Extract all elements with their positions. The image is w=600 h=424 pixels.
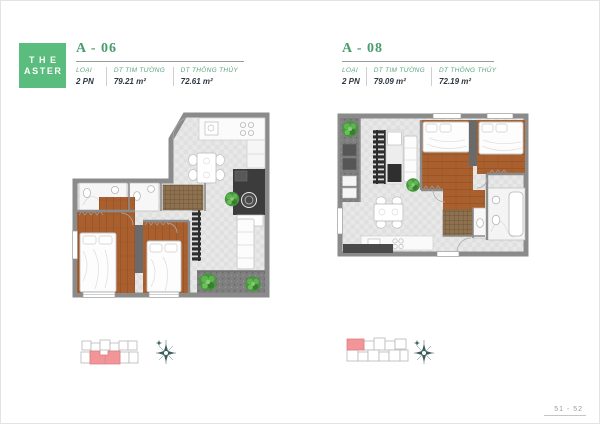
sofa	[237, 219, 254, 269]
spec-value: 72.19 m²	[439, 77, 496, 86]
unit-header-a06: A - 06 LOẠI 2 PN DT TIM TƯỜNG 79.21 m² D…	[76, 41, 244, 86]
entry-mat	[443, 210, 473, 236]
spec-label: DT TIM TƯỜNG	[374, 67, 425, 74]
keyplan-a08	[345, 337, 411, 367]
title-underline	[342, 61, 494, 62]
spec-type: LOẠI 2 PN	[342, 67, 366, 86]
spec-label: DT TIM TƯỜNG	[114, 67, 167, 74]
keyplan-a06	[79, 338, 141, 368]
spec-value: 79.21 m²	[114, 77, 167, 86]
spec-value: 2 PN	[342, 77, 360, 86]
kitchen-island	[373, 130, 403, 184]
brochure-page: THE ASTER A - 06 LOẠI 2 PN DT TIM TƯỜNG …	[0, 0, 600, 424]
sofa	[404, 136, 417, 182]
entry-mat	[163, 185, 203, 210]
floor-plan-a08	[337, 112, 533, 260]
bathroom	[487, 188, 525, 240]
compass-icon	[414, 340, 434, 364]
wardrobe	[135, 225, 143, 273]
spec-gross-area: DT TIM TƯỜNG 79.21 m²	[106, 67, 173, 86]
compass-icon	[156, 340, 176, 364]
wc	[473, 208, 487, 238]
bedroom-2	[143, 221, 189, 293]
spec-net-area: DT THÔNG THỦY 72.19 m²	[431, 67, 502, 86]
plant-icon	[199, 273, 217, 291]
unit-title: A - 08	[342, 41, 494, 57]
unit-header-a08: A - 08 LOẠI 2 PN DT TIM TƯỜNG 79.09 m² D…	[342, 41, 494, 86]
unit-specs: LOẠI 2 PN DT TIM TƯỜNG 79.09 m² DT THÔNG…	[342, 67, 494, 86]
title-underline	[76, 61, 244, 62]
plant-icon	[342, 121, 358, 137]
spec-label: LOẠI	[342, 67, 360, 74]
floor-plan-a06	[71, 109, 271, 301]
wardrobe	[469, 120, 477, 166]
spec-gross-area: DT TIM TƯỜNG 79.09 m²	[366, 67, 431, 86]
spec-label: DT THÔNG THỦY	[439, 67, 496, 74]
plant-icon	[406, 178, 420, 192]
brand-logo-line2: ASTER	[24, 66, 63, 77]
page-number: 51 - 52	[544, 406, 586, 416]
unit-title: A - 06	[76, 41, 244, 57]
plant-icon	[225, 192, 239, 206]
unit-specs: LOẠI 2 PN DT TIM TƯỜNG 79.21 m² DT THÔNG…	[76, 67, 244, 86]
spec-value: 2 PN	[76, 77, 100, 86]
spec-type: LOẠI 2 PN	[76, 67, 106, 86]
spec-net-area: DT THÔNG THỦY 72.61 m²	[173, 67, 244, 86]
brand-logo: THE ASTER	[19, 43, 66, 88]
spec-label: DT THÔNG THỦY	[181, 67, 238, 74]
spec-value: 72.61 m²	[181, 77, 238, 86]
keyplan-highlight	[347, 339, 364, 350]
spec-label: LOẠI	[76, 67, 100, 74]
counter-dark	[343, 244, 393, 253]
brand-logo-line1: THE	[29, 55, 61, 66]
plant-icon	[245, 276, 260, 291]
spec-value: 79.09 m²	[374, 77, 425, 86]
bedroom-2	[477, 120, 525, 174]
